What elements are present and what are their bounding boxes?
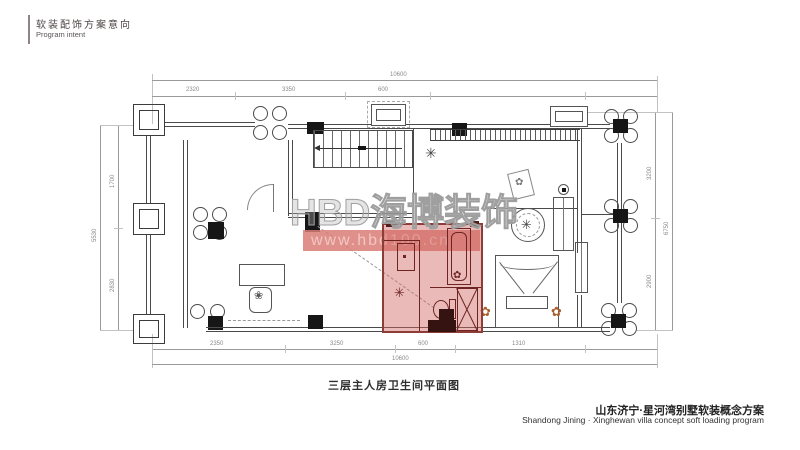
dim-line-right-overall	[672, 112, 673, 330]
dim-label: 2830	[110, 279, 116, 292]
dim-label: 10600	[390, 72, 407, 78]
dim-line-top-overall	[152, 80, 657, 81]
project-title-en: Shandong Jining · Xinghewan villa concep…	[522, 415, 764, 425]
watermark-logo: HBD海博装饰	[290, 182, 518, 236]
wall-terrace-inner	[183, 140, 188, 328]
bathroom-partition	[419, 240, 420, 331]
sheet-title-en: Program intent	[36, 30, 85, 39]
door-panel-line	[581, 243, 582, 292]
wardrobe-divider	[563, 198, 564, 250]
dim-tick	[345, 92, 346, 100]
column-left-bottom	[133, 314, 165, 344]
stair-direction-arrow	[314, 145, 320, 151]
dim-tick	[585, 345, 586, 353]
dim-tick	[285, 345, 286, 353]
dim-label: 1310	[512, 341, 525, 347]
dim-label: 600	[418, 341, 428, 347]
plant-symbol: ❀	[254, 291, 263, 302]
bay-niche	[371, 104, 406, 126]
door-leaf	[273, 184, 274, 212]
dim-tick	[114, 228, 123, 229]
dim-label: 2320	[186, 87, 199, 93]
extension-line	[100, 330, 133, 331]
dim-tick	[585, 92, 586, 100]
door-swing-arc	[247, 184, 273, 210]
medallion-symbol: ✳	[521, 218, 532, 231]
sheet-title-cn: 软装配饰方案意向	[36, 16, 132, 31]
dim-line-top-segments	[152, 96, 657, 97]
dim-label: 5530	[92, 229, 98, 242]
threshold-dashed-line	[228, 320, 300, 321]
dim-label: 1700	[110, 175, 116, 188]
column-fill	[611, 314, 626, 328]
dim-label: 2900	[647, 275, 653, 288]
header-accent-bar	[28, 15, 30, 44]
dim-tick	[395, 345, 396, 353]
ornate-column	[253, 106, 287, 140]
column-fill	[208, 222, 224, 239]
dim-label: 600	[378, 87, 388, 93]
bathroom-partition	[384, 240, 419, 241]
shower-symbol: ✳	[394, 286, 405, 299]
tub-flower-symbol: ✿	[453, 271, 461, 281]
extension-line	[657, 334, 658, 368]
extension-line	[657, 76, 658, 112]
dim-line-bottom-overall	[152, 364, 657, 365]
dim-label: 10600	[392, 356, 409, 362]
dim-line-bottom-segments	[152, 349, 657, 350]
bed-blanket	[506, 296, 548, 309]
column-left-top	[133, 104, 165, 136]
wall-inner-right-lower	[577, 295, 582, 328]
drawing-sheet: 软装配饰方案意向 Program intent 10600 2320 3350 …	[0, 0, 800, 450]
bed-headboard-curve	[500, 258, 554, 270]
wall-terrace-top	[165, 122, 255, 127]
ceiling-symbol: ✳	[425, 146, 437, 160]
dim-tick	[235, 92, 236, 100]
dim-label: 6750	[664, 222, 670, 235]
dim-label: 2350	[210, 341, 223, 347]
bay-niche	[550, 106, 588, 127]
extension-line	[100, 125, 133, 126]
desk	[239, 264, 285, 286]
dim-tick	[430, 92, 431, 100]
dim-label: 3350	[282, 87, 295, 93]
dim-tick	[455, 345, 456, 353]
railing-balusters	[430, 129, 580, 141]
vanity-knob	[403, 255, 406, 258]
wall-terrace-left-upper	[146, 136, 151, 203]
wall-terrace-left-lower	[146, 235, 151, 314]
dim-label: 3250	[330, 341, 343, 347]
ornament-dot	[562, 188, 566, 192]
step-upper	[439, 309, 454, 320]
column-fill	[308, 315, 323, 329]
dim-line-left-overall	[100, 125, 101, 330]
dim-line-right-segments	[655, 112, 656, 330]
nightstand-flower: ✿	[551, 305, 562, 318]
dim-tick	[651, 218, 660, 219]
column-fill	[613, 209, 628, 223]
stair-marker	[358, 146, 366, 150]
column-fill	[613, 119, 628, 133]
step-lower	[428, 320, 456, 332]
dim-label: 3200	[647, 167, 653, 180]
vanity-sink	[397, 243, 415, 271]
column-left-mid	[133, 203, 165, 235]
plan-caption: 三层主人房卫生间平面图	[328, 377, 460, 393]
extension-line	[637, 330, 673, 331]
wall-inner-right-upper	[577, 129, 582, 253]
